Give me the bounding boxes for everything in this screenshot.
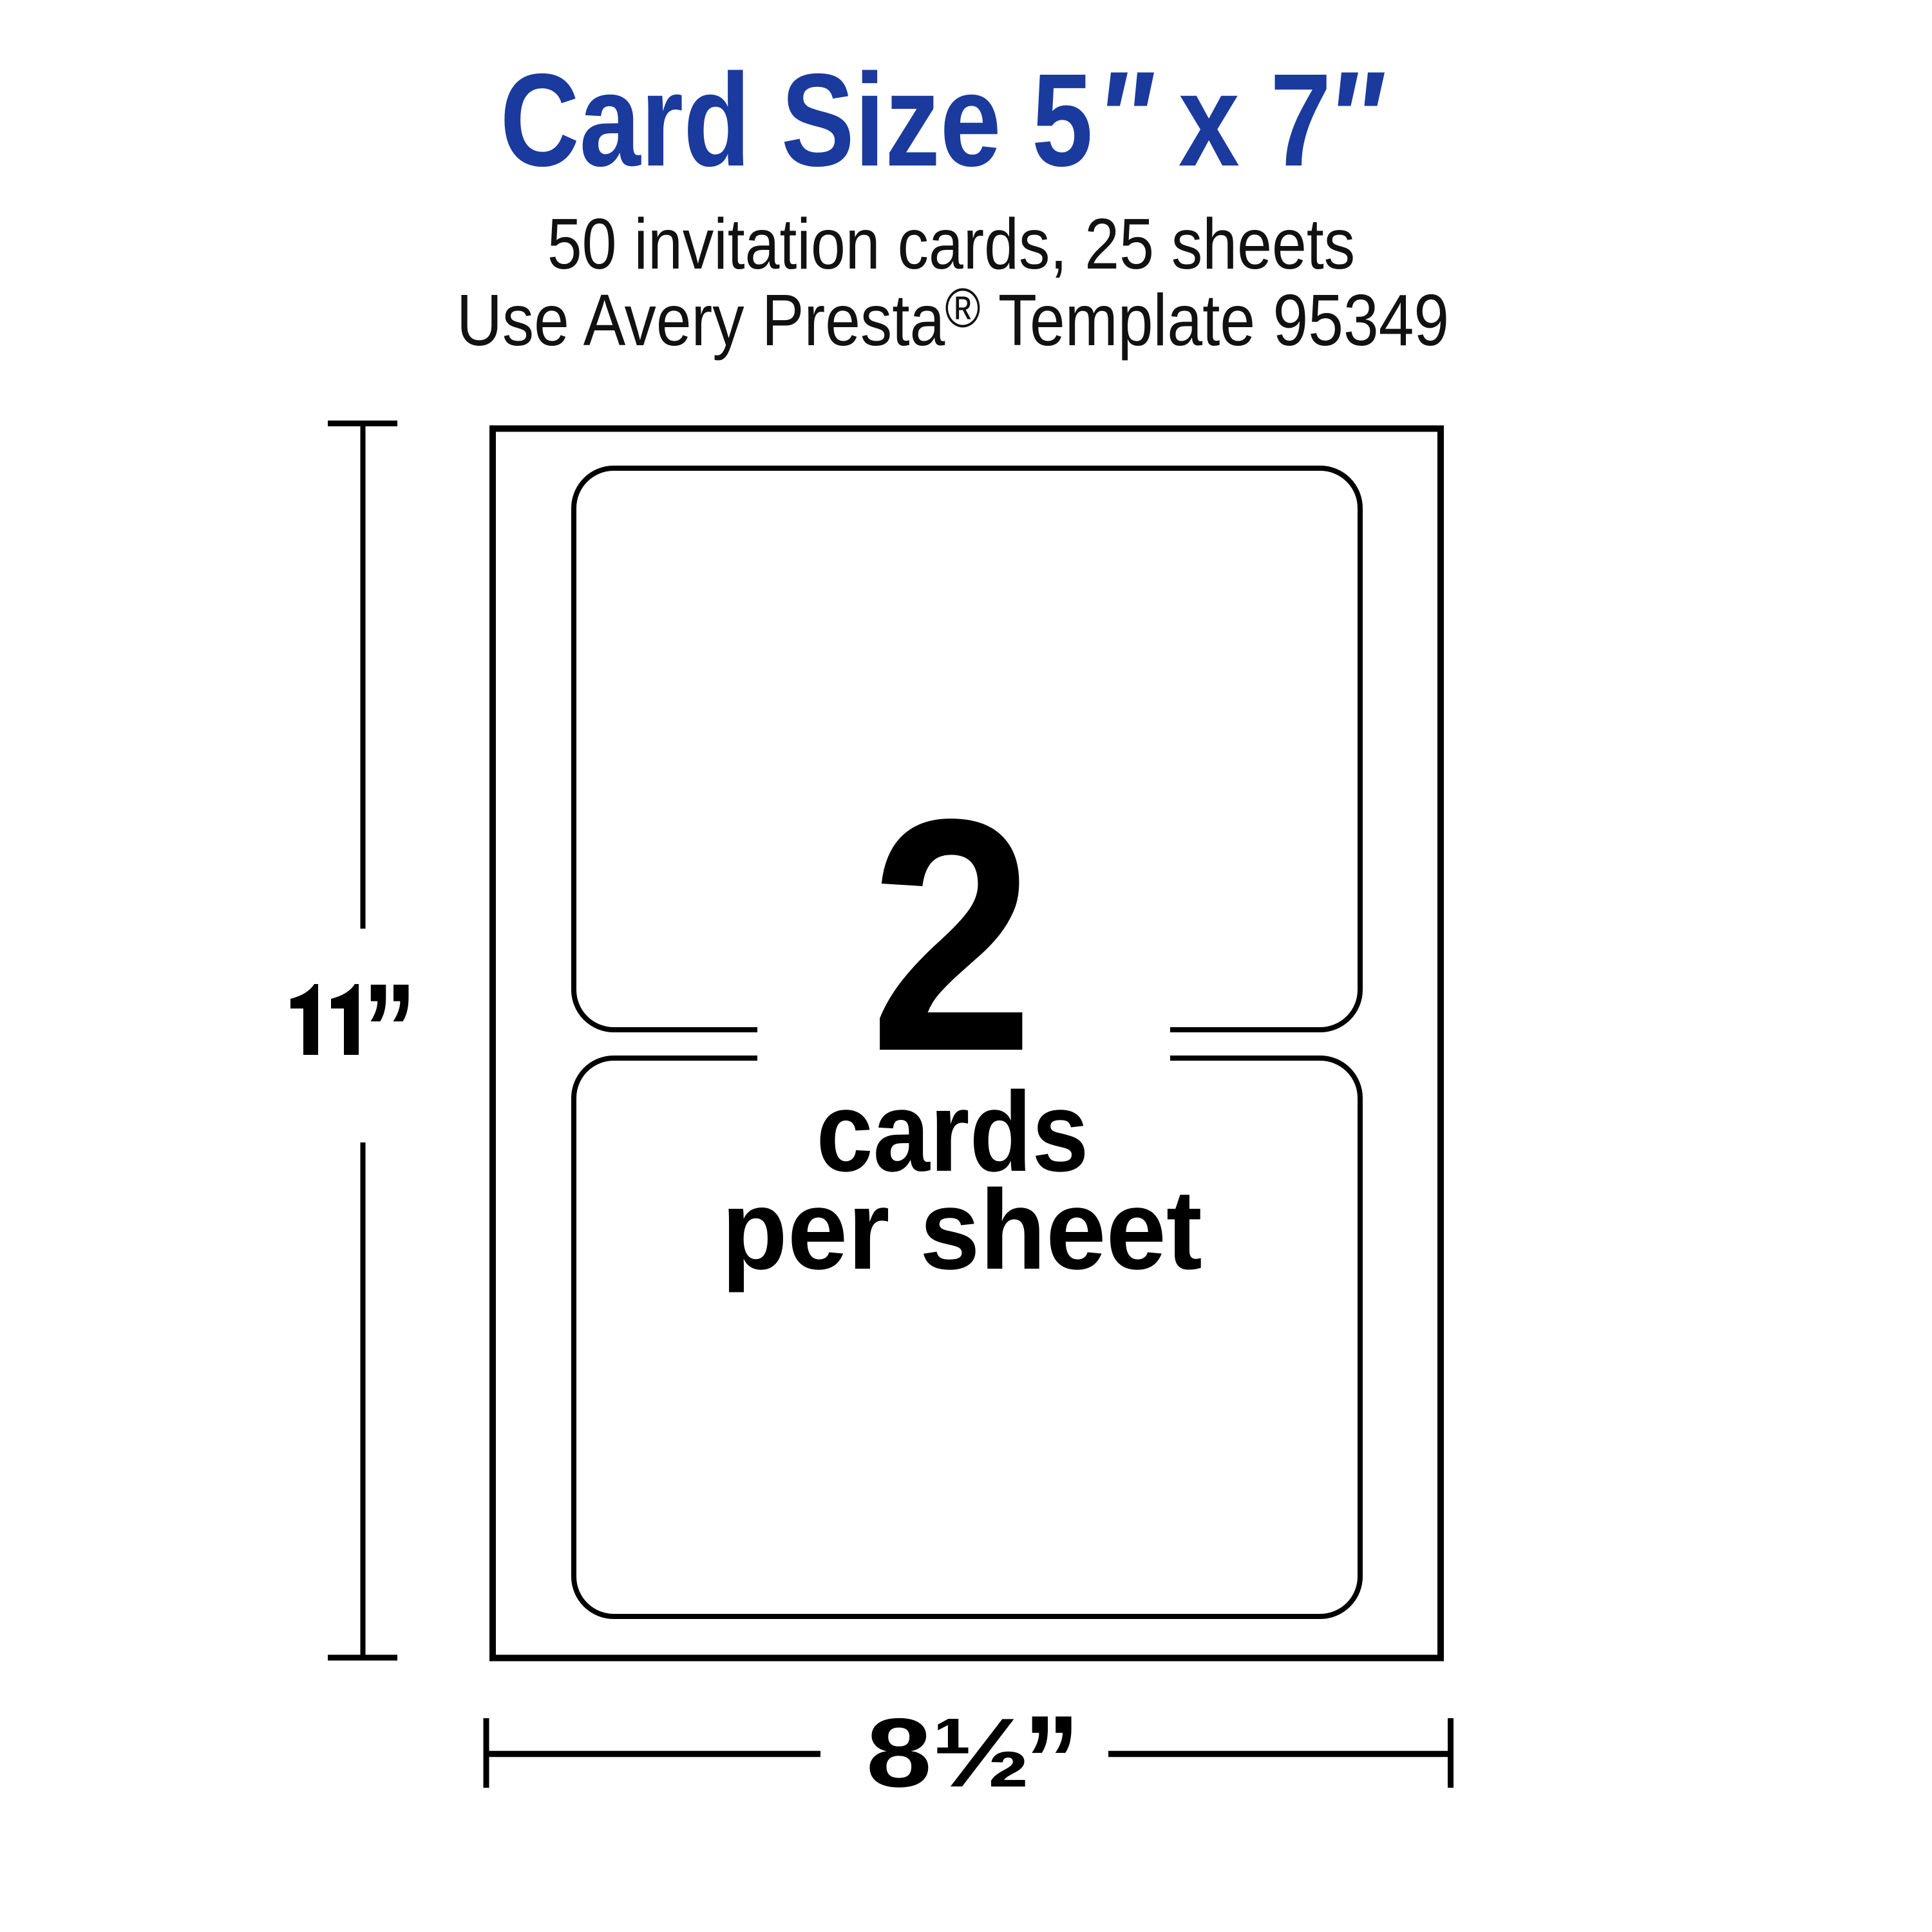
svg-text:50 invitation cards, 25 sheets: 50 invitation cards, 25 sheets: [547, 205, 1355, 285]
svg-text:Use Avery Presta® Template 953: Use Avery Presta® Template 95349: [457, 278, 1449, 361]
svg-text:2: 2: [869, 751, 1034, 1121]
svg-text:”: ”: [1024, 1689, 1080, 1833]
svg-text:”: ”: [363, 957, 417, 1102]
svg-text:per sheet: per sheet: [721, 1166, 1202, 1293]
svg-text:Card Size 5” x 7”: Card Size 5” x 7”: [500, 46, 1387, 193]
svg-text:8½: 8½: [866, 1698, 1031, 1807]
